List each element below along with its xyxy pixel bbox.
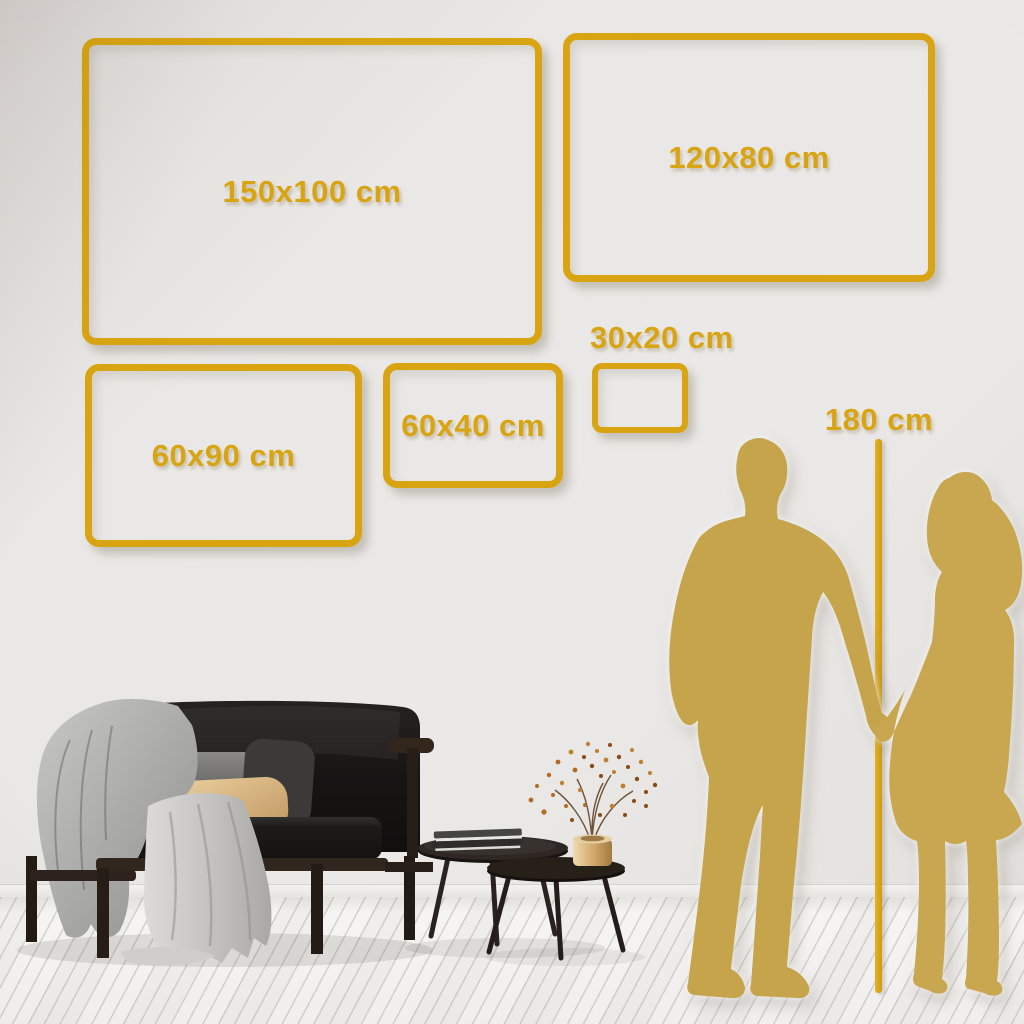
couple-silhouettes <box>0 0 1024 1024</box>
man-silhouette <box>669 438 892 998</box>
size-guide-scene: 150x100 cm 120x80 cm 60x90 cm 60x40 cm 3… <box>0 0 1024 1024</box>
woman-silhouette <box>875 472 1022 996</box>
